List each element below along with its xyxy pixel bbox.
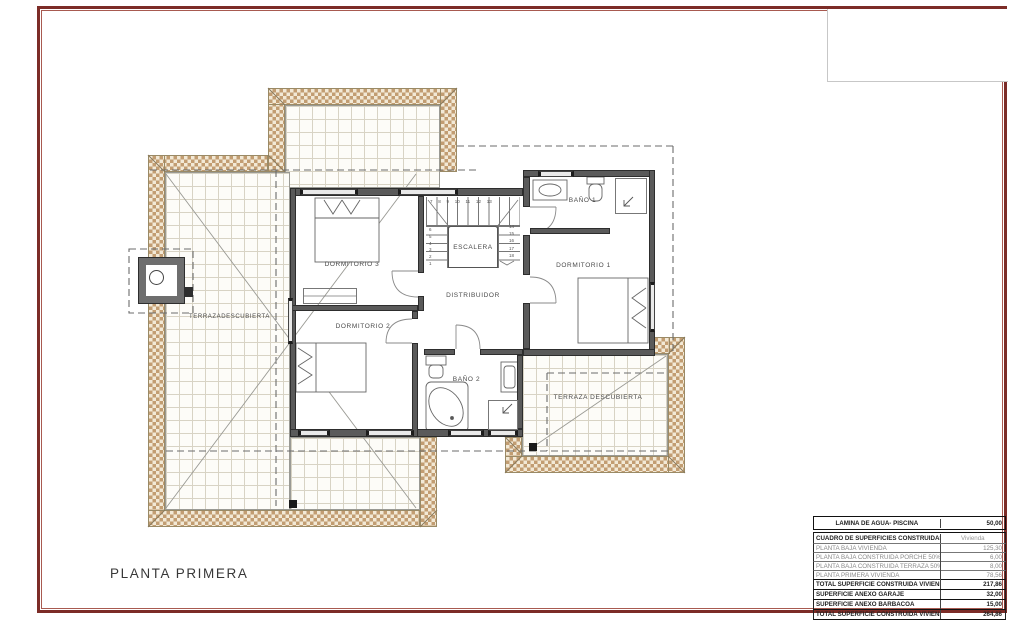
surface-table: LAMINA DE AGUA- PISCINA 50,00 CUADRO DE … [813, 516, 1006, 620]
table-cell-label: CUADRO DE SUPERFICIES CONSTRUIDAS (m2) [814, 534, 940, 543]
stair-numbers-right: 14 15 16 17 18 [509, 223, 519, 259]
stair-numbers-top: 7 8 9 10 11 12 13 [430, 199, 520, 204]
room-label-dormitorio3: DORMITORIO 3 [307, 261, 397, 268]
table-cell-label: PLANTA BAJA CONSTRUIDA TERRAZA 50% [814, 562, 940, 571]
room-label-distribuidor: DISTRIBUIDOR [428, 292, 518, 299]
room-label-terraza-izquierda: TERRAZADESCUBIERTA [182, 314, 277, 320]
table-cell-label: SUPERFICIE ANEXO BARBACOA [814, 600, 940, 609]
chimney-flue [149, 270, 164, 285]
table-row-total: SUPERFICIE ANEXO GARAJE 32,00 [813, 589, 1006, 599]
table-row-water: LAMINA DE AGUA- PISCINA 50,00 [813, 516, 1006, 530]
sheet-title: PLANTA PRIMERA [110, 566, 248, 581]
table-row: PLANTA BAJA VIVIENDA 125,30 [813, 543, 1006, 552]
table-cell-value: 32,00 [940, 590, 1005, 599]
window [288, 298, 293, 344]
closet-bano1 [615, 178, 647, 214]
room-label-bano1: BAÑO 1 [560, 197, 605, 204]
window [398, 189, 458, 195]
toilet-bano2 [426, 356, 446, 378]
room-label-dormitorio2: DORMITORIO 2 [318, 323, 408, 330]
table-cell-value: 8,00 [940, 562, 1005, 571]
wall-segment [523, 303, 530, 349]
wall-segment [530, 228, 610, 234]
table-cell-value: 264,86 [940, 610, 1005, 619]
window [366, 430, 414, 436]
table-cell-value: 15,00 [940, 600, 1005, 609]
table-cell-value: 50,00 [940, 519, 1005, 528]
table-row: PLANTA BAJA CONSTRUIDA TERRAZA 50% 8,00 [813, 561, 1006, 570]
bed-dormitorio2 [296, 343, 366, 392]
window [298, 430, 330, 436]
wall-segment [290, 305, 418, 311]
wall-segment [418, 296, 424, 311]
wall-segment [412, 343, 418, 437]
shower-bano2 [488, 400, 518, 430]
window [448, 430, 484, 436]
table-cell-label: PLANTA BAJA VIVIENDA [814, 544, 940, 553]
table-row-grand-total: TOTAL SUPERFICIE CONSTRUIDA VIVIENDA + A… [813, 609, 1006, 620]
table-row-total: TOTAL SUPERFICIE CONSTRUIDA VIVIENDA 217… [813, 579, 1006, 589]
wall-segment [418, 196, 424, 273]
table-row-total: SUPERFICIE ANEXO BARBACOA 15,00 [813, 599, 1006, 609]
wall-segment [523, 349, 655, 356]
table-header-row: CUADRO DE SUPERFICIES CONSTRUIDAS (m2) V… [813, 532, 1006, 543]
table-cell-label: PLANTA PRIMERA VIVIENDA [814, 571, 940, 580]
bed-dormitorio1 [578, 278, 648, 343]
table-row: PLANTA BAJA CONSTRUIDA PORCHE 50% 6,00 [813, 552, 1006, 561]
terrace-drain [529, 443, 537, 451]
table-cell-value: 6,00 [940, 553, 1005, 562]
room-label-bano2: BAÑO 2 [444, 376, 489, 383]
wardrobe-dormitorio [303, 288, 357, 304]
drawing-sheet: { "page": { "title": "PLANTA PRIMERA" },… [0, 0, 1024, 621]
bed-dormitorio3 [315, 198, 379, 262]
window [650, 282, 655, 332]
table-cell-label: TOTAL SUPERFICIE CONSTRUIDA VIVIENDA + A… [814, 610, 940, 619]
wall-segment [523, 177, 530, 207]
sink-bano2 [501, 362, 518, 392]
stair-break-lines [428, 200, 518, 265]
table-cell-label: LAMINA DE AGUA- PISCINA [814, 519, 940, 528]
window [488, 430, 518, 436]
table-cell-label: PLANTA BAJA CONSTRUIDA PORCHE 50% [814, 553, 940, 562]
table-cell-label: TOTAL SUPERFICIE CONSTRUIDA VIVIENDA [814, 580, 940, 589]
table-cell-value: 217,86 [940, 580, 1005, 589]
chimney-connector [184, 287, 193, 297]
wall-segment [412, 311, 418, 319]
terrace-drain [289, 500, 297, 508]
table-row: PLANTA PRIMERA VIVIENDA 78,56 [813, 570, 1006, 579]
room-label-terraza-derecha: TERRAZA DESCUBIERTA [548, 394, 648, 401]
wall-segment [523, 235, 530, 275]
window [538, 171, 574, 177]
stair-numbers-left: 6 5 4 3 2 1 [429, 227, 437, 268]
table-cell-value: 125,30 [940, 544, 1005, 553]
table-cell-value: 78,56 [940, 571, 1005, 580]
table-cell-value: Vivienda [940, 534, 1005, 543]
wall-segment [424, 349, 455, 355]
window [300, 189, 358, 195]
room-label-dormitorio1: DORMITORIO 1 [546, 262, 621, 269]
table-cell-label: SUPERFICIE ANEXO GARAJE [814, 590, 940, 599]
bathtub-bano2 [422, 381, 471, 433]
